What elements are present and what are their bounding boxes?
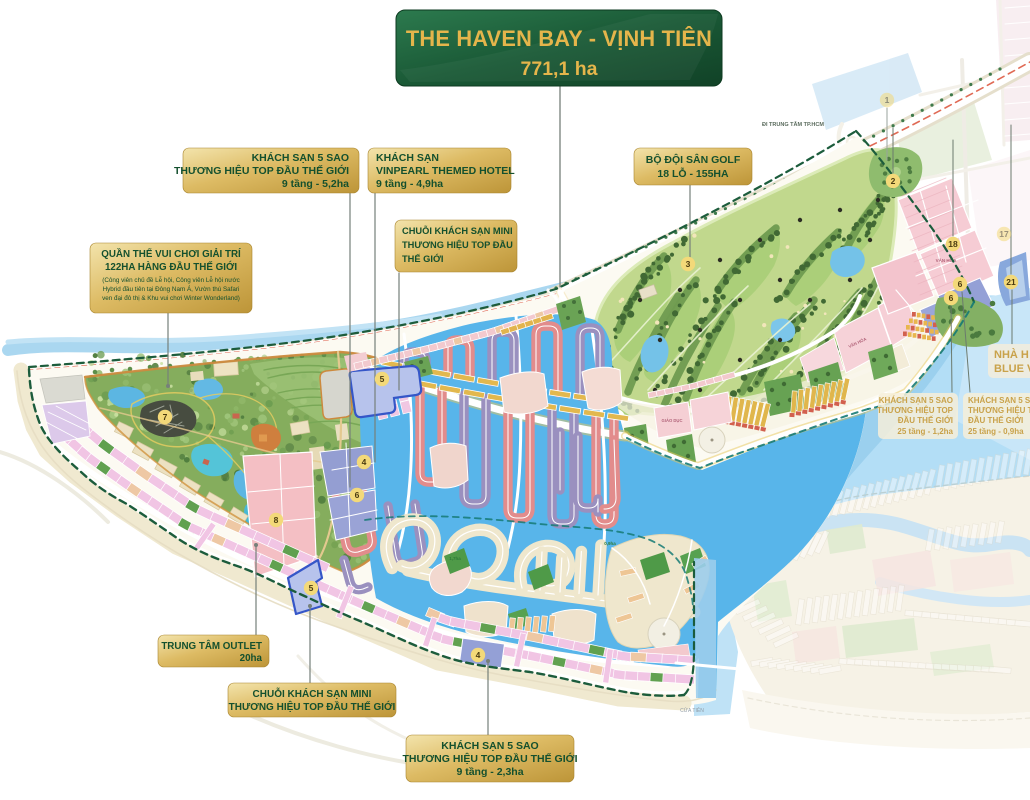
svg-text:THƯƠNG HIỆU TOP ĐẦU THẾ GIỚI: THƯƠNG HIỆU TOP ĐẦU THẾ GIỚI bbox=[403, 752, 578, 765]
svg-text:18 LỖ - 155HA: 18 LỖ - 155HA bbox=[657, 167, 729, 180]
svg-text:3: 3 bbox=[686, 259, 691, 269]
svg-text:ven đại đô thị & Khu vui chơi: ven đại đô thị & Khu vui chơi Winter Won… bbox=[102, 295, 240, 302]
svg-text:21: 21 bbox=[1006, 277, 1016, 287]
svg-text:6: 6 bbox=[958, 279, 963, 289]
svg-text:Hybrid đầu tiên tại Đông Nam Á: Hybrid đầu tiên tại Đông Nam Á, Vườn thú… bbox=[103, 284, 240, 293]
svg-text:THƯƠNG HIỆU TOP: THƯƠNG HIỆU TOP bbox=[877, 406, 954, 415]
svg-text:7: 7 bbox=[163, 412, 168, 422]
svg-text:GIÁO DỤC: GIÁO DỤC bbox=[662, 418, 683, 423]
svg-text:THƯƠNG HIỆU TOP ĐẦU: THƯƠNG HIỆU TOP ĐẦU bbox=[402, 239, 513, 250]
svg-text:THE HAVEN BAY - VỊNH TIÊN: THE HAVEN BAY - VỊNH TIÊN bbox=[406, 26, 712, 51]
svg-text:BỘ ĐỘI SÂN GOLF: BỘ ĐỘI SÂN GOLF bbox=[646, 153, 741, 166]
svg-text:KHÁCH SẠN 5 SA: KHÁCH SẠN 5 SA bbox=[968, 396, 1030, 405]
svg-text:CỬA TIÊN: CỬA TIÊN bbox=[680, 706, 704, 714]
svg-text:9 tầng - 2,3ha: 9 tầng - 2,3ha bbox=[456, 766, 523, 778]
svg-text:THƯƠNG HIỆU TO: THƯƠNG HIỆU TO bbox=[968, 406, 1030, 415]
svg-text:(Công viên chủ đề Lễ hội, Công: (Công viên chủ đề Lễ hội, Công viên Lễ h… bbox=[102, 275, 240, 284]
svg-text:VINPEARL THEMED HOTEL: VINPEARL THEMED HOTEL bbox=[376, 165, 515, 177]
svg-text:771,1 ha: 771,1 ha bbox=[521, 58, 598, 80]
svg-text:THẾ GIỚI: THẾ GIỚI bbox=[402, 253, 444, 264]
svg-text:6: 6 bbox=[355, 490, 360, 500]
svg-text:6: 6 bbox=[949, 293, 954, 303]
svg-text:20ha: 20ha bbox=[240, 653, 263, 664]
svg-text:THƯƠNG HIỆU TOP ĐẦU THẾ GIỚI: THƯƠNG HIỆU TOP ĐẦU THẾ GIỚI bbox=[229, 700, 396, 713]
svg-text:KHÁCH SẠN: KHÁCH SẠN bbox=[376, 151, 439, 164]
svg-text:THƯƠNG HIỆU TOP ĐẦU THẾ GIỚI: THƯƠNG HIỆU TOP ĐẦU THẾ GIỚI bbox=[174, 164, 349, 177]
svg-text:4: 4 bbox=[476, 650, 481, 660]
svg-text:NHÀ H: NHÀ H bbox=[994, 348, 1029, 361]
svg-text:8: 8 bbox=[274, 515, 279, 525]
svg-text:4: 4 bbox=[362, 457, 367, 467]
svg-text:9 tầng - 5,2ha: 9 tầng - 5,2ha bbox=[282, 178, 349, 190]
svg-text:25 tầng - 1,2ha: 25 tầng - 1,2ha bbox=[897, 427, 953, 436]
svg-text:ĐẦU THẾ GIỚI: ĐẦU THẾ GIỚI bbox=[898, 415, 953, 425]
svg-text:2: 2 bbox=[891, 176, 896, 186]
svg-text:5: 5 bbox=[380, 374, 385, 384]
svg-text:18: 18 bbox=[948, 239, 958, 249]
svg-text:1,7ha: 1,7ha bbox=[449, 556, 461, 561]
svg-text:ĐẦU THẾ GIỚI: ĐẦU THẾ GIỚI bbox=[968, 415, 1023, 425]
svg-text:1: 1 bbox=[885, 95, 890, 105]
svg-text:KHÁCH SẠN 5 SAO: KHÁCH SẠN 5 SAO bbox=[252, 151, 349, 164]
svg-text:0,9ha: 0,9ha bbox=[604, 541, 616, 546]
svg-text:25 tầng - 0,9ha: 25 tầng - 0,9ha bbox=[968, 427, 1024, 436]
svg-text:CHUỖI KHÁCH SẠN MINI: CHUỖI KHÁCH SẠN MINI bbox=[253, 687, 372, 700]
svg-text:QUẦN THỂ VUI CHƠI GIẢI TRÍ: QUẦN THỂ VUI CHƠI GIẢI TRÍ bbox=[101, 248, 241, 260]
svg-text:17: 17 bbox=[999, 229, 1009, 239]
svg-text:BLUE V: BLUE V bbox=[994, 363, 1030, 375]
svg-text:KHÁCH SẠN 5 SAO: KHÁCH SẠN 5 SAO bbox=[879, 396, 953, 405]
svg-text:9 tầng - 4,9ha: 9 tầng - 4,9ha bbox=[376, 178, 443, 190]
svg-text:KHÁCH SẠN 5 SAO: KHÁCH SẠN 5 SAO bbox=[441, 739, 538, 752]
svg-text:122HA HÀNG ĐẦU THẾ GIỚI: 122HA HÀNG ĐẦU THẾ GIỚI bbox=[105, 261, 237, 273]
svg-text:5: 5 bbox=[309, 583, 314, 593]
svg-text:TRUNG TÂM OUTLET: TRUNG TÂM OUTLET bbox=[161, 640, 262, 652]
svg-text:CHUỖI KHÁCH SẠN MINI: CHUỖI KHÁCH SẠN MINI bbox=[402, 225, 513, 236]
svg-text:ĐI TRUNG TÂM TP.HCM: ĐI TRUNG TÂM TP.HCM bbox=[762, 121, 824, 128]
